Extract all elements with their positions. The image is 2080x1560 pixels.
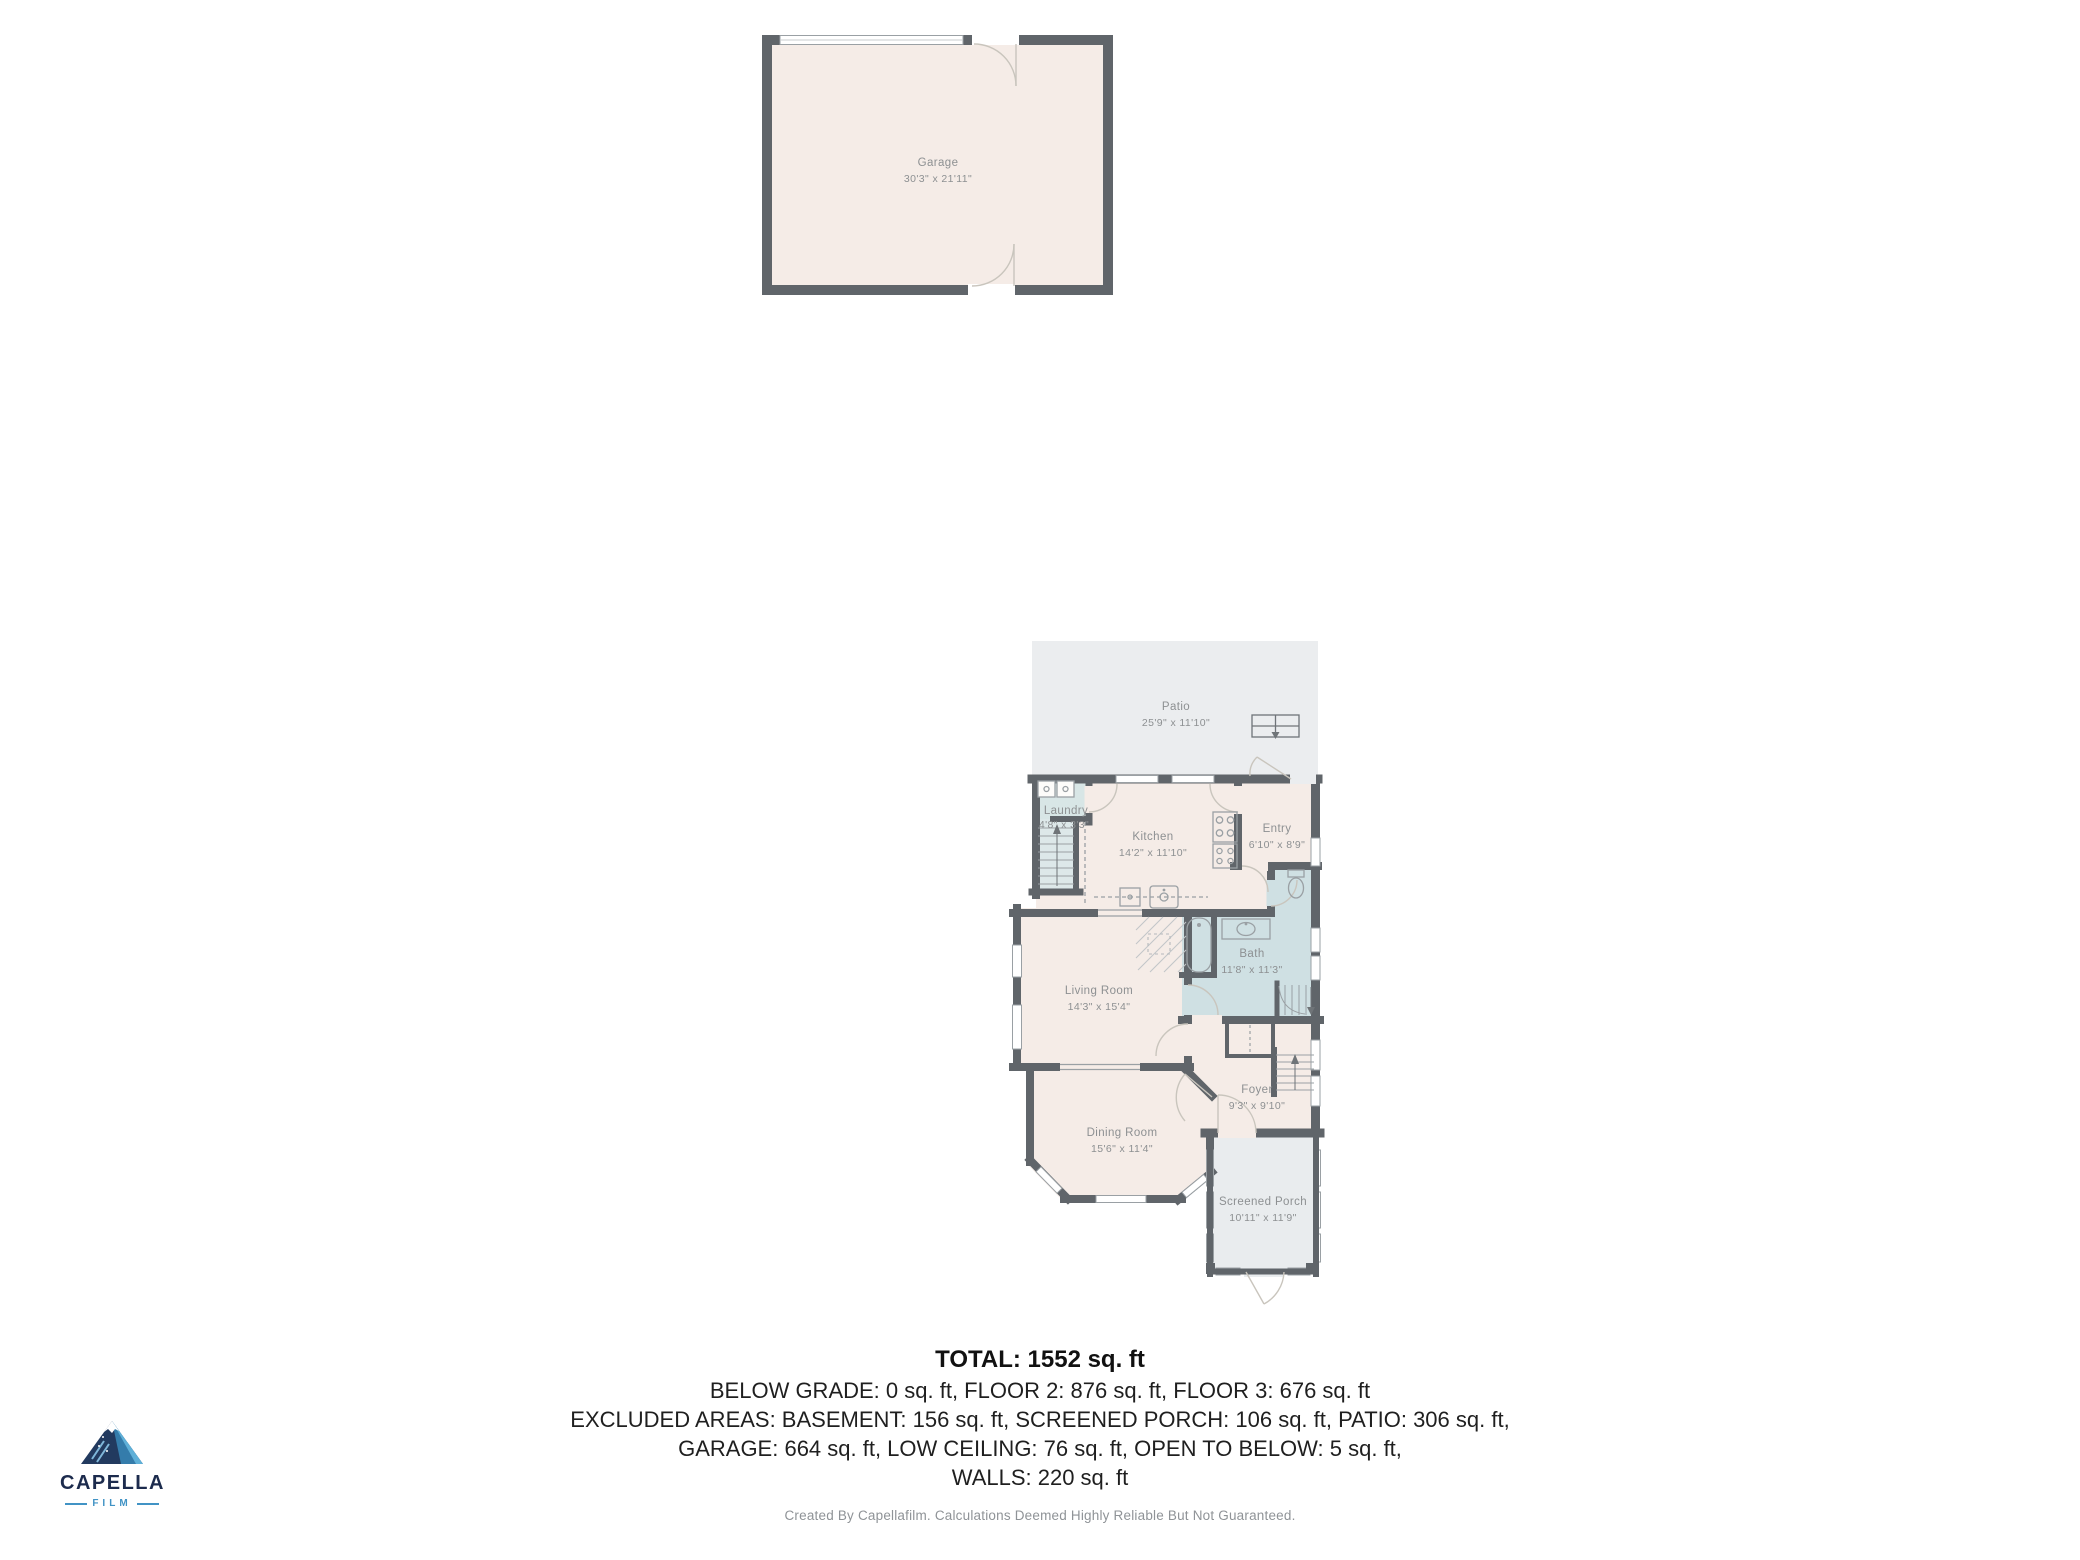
summary-total: TOTAL: 1552 sq. ft — [0, 1344, 2080, 1376]
kitchen-label: Kitchen — [1132, 831, 1173, 843]
capella-logo: CAPELLA FILM — [60, 1420, 164, 1509]
bath-label: Bath — [1239, 948, 1264, 960]
summary-line-excluded: EXCLUDED AREAS: BASEMENT: 156 sq. ft, SC… — [0, 1405, 2080, 1434]
mountain-icon — [79, 1420, 145, 1466]
room-fills — [1013, 641, 1318, 1274]
screened-porch-label: Screened Porch — [1219, 1196, 1307, 1208]
summary-line-floors: BELOW GRADE: 0 sq. ft, FLOOR 2: 876 sq. … — [0, 1376, 2080, 1405]
summary-block: TOTAL: 1552 sq. ft BELOW GRADE: 0 sq. ft… — [0, 1344, 2080, 1492]
entry-dims: 6'10" x 8'9" — [1249, 839, 1306, 851]
garage-label: Garage — [918, 157, 959, 169]
patio-label: Patio — [1162, 701, 1190, 713]
dining-room-label: Dining Room — [1087, 1127, 1158, 1139]
disclaimer-text: Created By Capellafilm. Calculations Dee… — [0, 1508, 2080, 1523]
living-room-dims: 14'3" x 15'4" — [1068, 1001, 1131, 1013]
patio-dims: 25'9" x 11'10" — [1142, 717, 1210, 729]
bath-dims: 11'8" x 11'3" — [1221, 964, 1282, 976]
garage-dims: 30'3" x 21'11" — [904, 173, 972, 185]
entry-label: Entry — [1263, 823, 1292, 835]
floorplan-page: Garage 30'3" x 21'11" — [0, 0, 2080, 1560]
laundry-label: Laundry — [1044, 805, 1088, 817]
logo-sub-text: FILM — [92, 1498, 131, 1509]
dining-room-dims: 15'6" x 11'4" — [1091, 1143, 1153, 1155]
foyer-label: Foyer — [1241, 1084, 1272, 1096]
living-room-label: Living Room — [1065, 985, 1133, 997]
hall-area — [1240, 866, 1271, 916]
logo-right-line — [137, 1503, 159, 1505]
summary-line-garage: GARAGE: 664 sq. ft, LOW CEILING: 76 sq. … — [0, 1434, 2080, 1463]
garage-room: Garage 30'3" x 21'11" — [767, 34, 1108, 295]
screened-porch-dims: 10'11" x 11'9" — [1229, 1212, 1296, 1224]
logo-sub-row: FILM — [60, 1498, 164, 1509]
foyer-dims: 9'3" x 9'10" — [1229, 1100, 1286, 1112]
floorplan-drawing: Garage 30'3" x 21'11" — [0, 0, 2080, 1560]
logo-left-line — [65, 1503, 87, 1505]
summary-line-walls: WALLS: 220 sq. ft — [0, 1463, 2080, 1492]
laundry-dims: 4'8" x 3'3" — [1039, 819, 1089, 831]
logo-brand-text: CAPELLA — [60, 1472, 164, 1495]
kitchen-dims: 14'2" x 11'10" — [1119, 847, 1187, 859]
